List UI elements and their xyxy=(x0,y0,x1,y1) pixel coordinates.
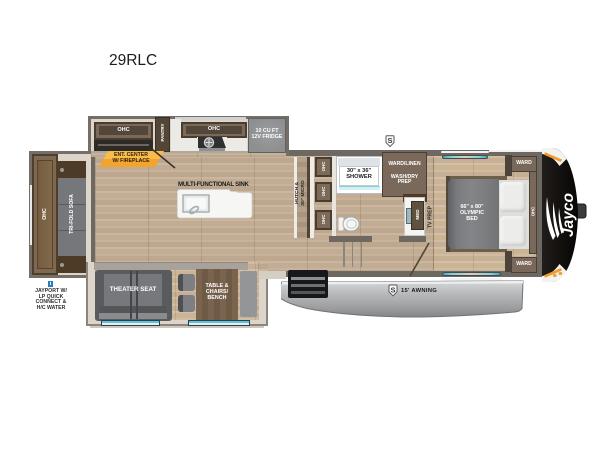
svg-text:S: S xyxy=(390,285,395,294)
svg-text:S: S xyxy=(387,136,392,145)
svg-text:HUTCH &: HUTCH & xyxy=(294,182,300,204)
svg-text:30" MICRO: 30" MICRO xyxy=(300,180,306,206)
